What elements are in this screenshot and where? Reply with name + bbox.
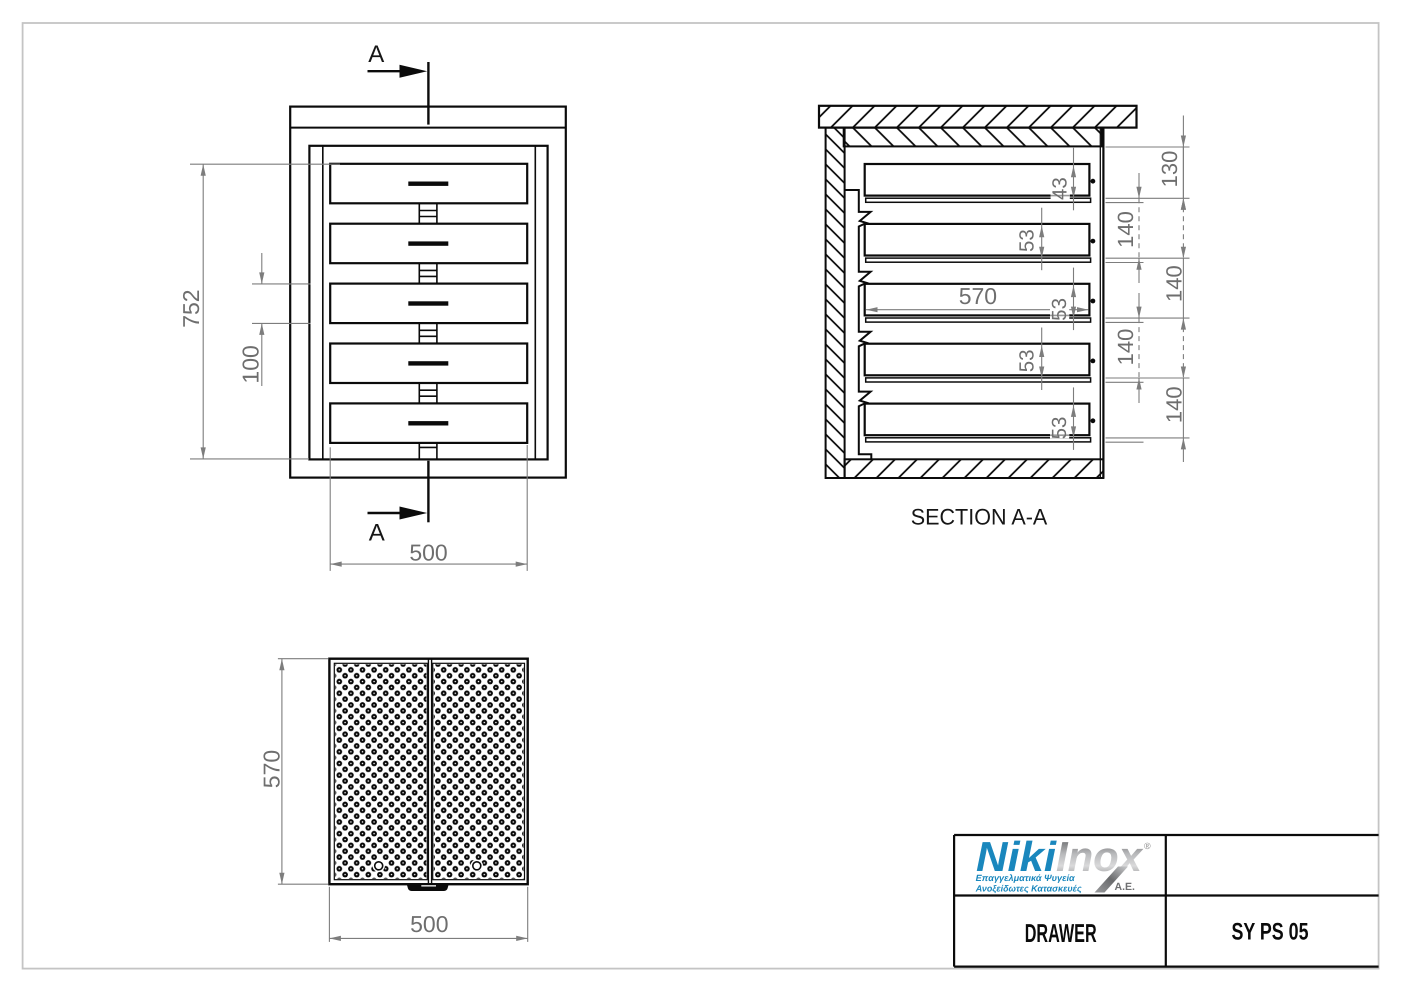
svg-text:570: 570 <box>959 283 997 309</box>
svg-text:Ανοξείδωτες Κατασκευές: Ανοξείδωτες Κατασκευές <box>975 883 1082 893</box>
svg-text:A: A <box>368 41 384 68</box>
svg-text:140: 140 <box>1113 329 1138 366</box>
svg-text:®: ® <box>1144 841 1151 851</box>
svg-text:53: 53 <box>1048 417 1071 440</box>
svg-text:A: A <box>369 519 385 546</box>
svg-text:570: 570 <box>259 750 285 788</box>
svg-text:130: 130 <box>1157 151 1182 188</box>
svg-text:DRAWER: DRAWER <box>1025 918 1097 948</box>
svg-text:53: 53 <box>1015 229 1038 252</box>
svg-text:500: 500 <box>410 911 448 937</box>
svg-text:Α.Ε.: Α.Ε. <box>1115 881 1136 893</box>
svg-text:53: 53 <box>1048 298 1071 321</box>
svg-text:140: 140 <box>1161 386 1186 423</box>
svg-text:100: 100 <box>238 345 264 383</box>
svg-text:43: 43 <box>1049 177 1072 200</box>
svg-text:140: 140 <box>1161 265 1186 302</box>
svg-text:53: 53 <box>1015 349 1038 372</box>
svg-text:Επαγγελματικά Ψυγεία: Επαγγελματικά Ψυγεία <box>976 873 1075 883</box>
svg-text:SY PS 05: SY PS 05 <box>1232 919 1309 946</box>
svg-text:140: 140 <box>1113 211 1138 248</box>
svg-text:752: 752 <box>178 289 204 327</box>
svg-text:500: 500 <box>409 539 447 565</box>
svg-text:SECTION A-A: SECTION A-A <box>911 505 1048 530</box>
